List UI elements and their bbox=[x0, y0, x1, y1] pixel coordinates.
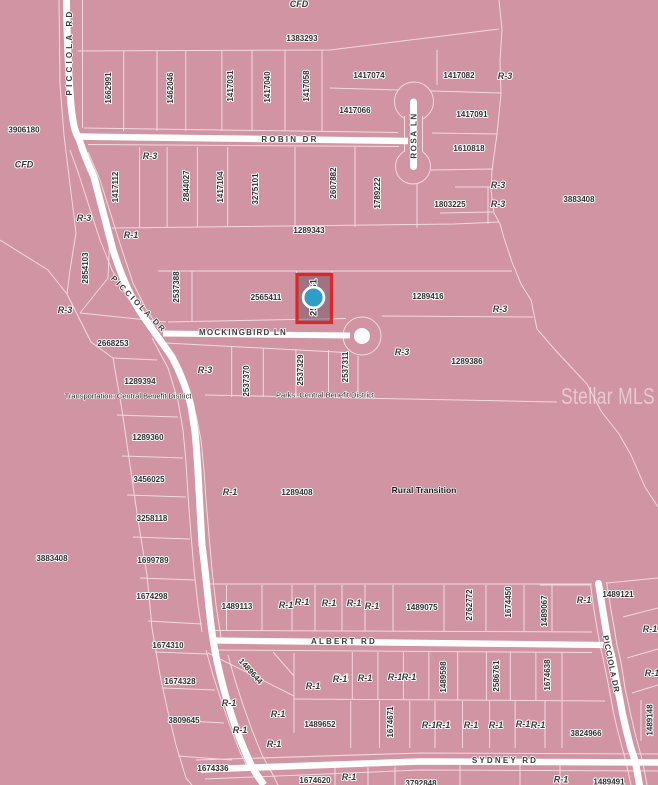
svg-text:3258118: 3258118 bbox=[137, 514, 168, 523]
svg-text:3809645: 3809645 bbox=[168, 716, 200, 725]
svg-text:R-1: R-1 bbox=[554, 775, 569, 785]
svg-text:1489067: 1489067 bbox=[540, 595, 549, 627]
svg-text:1417040: 1417040 bbox=[263, 71, 272, 103]
svg-text:ROBIN DR: ROBIN DR bbox=[261, 135, 318, 144]
svg-text:R-3: R-3 bbox=[493, 304, 508, 314]
svg-text:3456025: 3456025 bbox=[133, 475, 165, 484]
svg-text:1417058: 1417058 bbox=[302, 70, 311, 102]
svg-text:Parks: Central Benefit Distric: Parks: Central Benefit District bbox=[276, 391, 375, 400]
svg-text:1674671: 1674671 bbox=[386, 706, 395, 738]
svg-text:R-1: R-1 bbox=[306, 681, 321, 691]
svg-text:2537370: 2537370 bbox=[242, 365, 251, 397]
svg-text:CFD: CFD bbox=[290, 0, 309, 9]
svg-text:1489652: 1489652 bbox=[304, 720, 336, 729]
svg-text:1489491: 1489491 bbox=[593, 778, 625, 785]
svg-text:2668253: 2668253 bbox=[97, 339, 129, 348]
svg-text:ALBERT RD: ALBERT RD bbox=[311, 637, 377, 646]
svg-text:2607882: 2607882 bbox=[329, 167, 338, 199]
svg-text:1417074: 1417074 bbox=[353, 71, 385, 80]
svg-text:1417091: 1417091 bbox=[456, 110, 488, 119]
svg-text:1674298: 1674298 bbox=[136, 592, 168, 601]
svg-text:1417112: 1417112 bbox=[111, 171, 120, 202]
svg-text:R-3: R-3 bbox=[395, 347, 410, 357]
svg-text:R-1: R-1 bbox=[279, 600, 294, 610]
svg-text:1489075: 1489075 bbox=[406, 603, 438, 612]
svg-text:2565411: 2565411 bbox=[251, 293, 282, 302]
svg-text:1489598: 1489598 bbox=[439, 661, 448, 693]
svg-text:R-3: R-3 bbox=[491, 199, 506, 209]
svg-text:2586761: 2586761 bbox=[492, 660, 501, 692]
svg-text:R-1: R-1 bbox=[233, 725, 248, 735]
svg-text:Transportation: Central Benefi: Transportation: Central Benefit District bbox=[65, 392, 193, 401]
svg-text:R-1: R-1 bbox=[124, 230, 139, 240]
svg-text:R-1: R-1 bbox=[358, 673, 373, 683]
svg-text:1699789: 1699789 bbox=[137, 556, 169, 565]
svg-text:R-1: R-1 bbox=[489, 720, 504, 730]
svg-text:R-3: R-3 bbox=[77, 213, 92, 223]
svg-text:R-1: R-1 bbox=[531, 720, 546, 730]
svg-text:MOCKINGBIRD LN: MOCKINGBIRD LN bbox=[199, 328, 287, 337]
svg-text:3792848: 3792848 bbox=[405, 779, 437, 785]
svg-text:1383293: 1383293 bbox=[286, 34, 318, 43]
svg-text:1662991: 1662991 bbox=[104, 72, 113, 104]
svg-text:R-1: R-1 bbox=[322, 598, 337, 608]
svg-text:R-3: R-3 bbox=[143, 151, 158, 161]
svg-text:1674336: 1674336 bbox=[197, 764, 229, 773]
svg-text:R-3: R-3 bbox=[198, 365, 213, 375]
svg-text:R-3: R-3 bbox=[491, 180, 506, 190]
svg-text:2762772: 2762772 bbox=[465, 589, 474, 621]
svg-text:1289408: 1289408 bbox=[281, 488, 313, 497]
svg-text:Stellar MLS: Stellar MLS bbox=[561, 383, 655, 409]
svg-text:R-1: R-1 bbox=[333, 674, 348, 684]
svg-text:3883408: 3883408 bbox=[36, 554, 68, 563]
svg-text:3883408: 3883408 bbox=[563, 195, 595, 204]
svg-text:3824966: 3824966 bbox=[570, 729, 602, 738]
svg-text:1289343: 1289343 bbox=[293, 226, 325, 235]
svg-text:1289386: 1289386 bbox=[451, 357, 483, 366]
svg-text:CFD: CFD bbox=[15, 160, 34, 170]
svg-text:1462046: 1462046 bbox=[166, 72, 175, 104]
svg-text:R-1: R-1 bbox=[422, 720, 437, 730]
svg-text:R-1: R-1 bbox=[436, 720, 451, 730]
svg-text:ROSA LN: ROSA LN bbox=[410, 112, 419, 158]
svg-text:1674328: 1674328 bbox=[164, 677, 196, 686]
svg-text:1417104: 1417104 bbox=[216, 171, 225, 203]
svg-text:1417082: 1417082 bbox=[443, 71, 475, 80]
svg-text:PICCIOLA RD: PICCIOLA RD bbox=[65, 9, 74, 96]
svg-text:R-1: R-1 bbox=[464, 720, 479, 730]
svg-text:R-1: R-1 bbox=[271, 709, 286, 719]
svg-text:R-1: R-1 bbox=[223, 487, 238, 497]
svg-text:3906180: 3906180 bbox=[8, 126, 40, 135]
svg-text:R-1: R-1 bbox=[516, 719, 531, 729]
svg-text:R-1: R-1 bbox=[222, 698, 237, 708]
svg-text:R-1: R-1 bbox=[295, 597, 310, 607]
svg-text:R-1: R-1 bbox=[402, 672, 417, 682]
svg-text:R-1: R-1 bbox=[645, 668, 658, 678]
svg-text:1674620: 1674620 bbox=[299, 776, 331, 785]
svg-text:1674310: 1674310 bbox=[152, 641, 184, 650]
svg-text:3275101: 3275101 bbox=[251, 173, 260, 205]
svg-text:R-1: R-1 bbox=[643, 624, 658, 634]
svg-text:1417031: 1417031 bbox=[226, 70, 235, 102]
svg-text:Rural Transition: Rural Transition bbox=[392, 485, 457, 495]
svg-text:1489121: 1489121 bbox=[602, 590, 634, 599]
svg-text:1674638: 1674638 bbox=[543, 659, 552, 691]
svg-text:1674450: 1674450 bbox=[504, 586, 513, 618]
svg-text:2844027: 2844027 bbox=[182, 170, 191, 202]
svg-text:SYDNEY RD: SYDNEY RD bbox=[472, 756, 538, 765]
svg-text:R-1: R-1 bbox=[577, 595, 592, 605]
svg-text:1489113: 1489113 bbox=[222, 602, 253, 611]
svg-text:2537329: 2537329 bbox=[296, 354, 305, 386]
svg-text:R-1: R-1 bbox=[347, 598, 362, 608]
svg-text:R-1: R-1 bbox=[388, 672, 403, 682]
svg-text:R-1: R-1 bbox=[342, 772, 357, 782]
svg-text:1289360: 1289360 bbox=[132, 433, 164, 442]
svg-text:2854103: 2854103 bbox=[81, 252, 90, 284]
svg-text:1610818: 1610818 bbox=[453, 144, 485, 153]
svg-text:R-1: R-1 bbox=[267, 739, 282, 749]
svg-text:R-3: R-3 bbox=[498, 71, 513, 81]
svg-text:1289416: 1289416 bbox=[412, 292, 444, 301]
svg-text:1489148: 1489148 bbox=[646, 704, 655, 736]
svg-text:1803225: 1803225 bbox=[434, 200, 466, 209]
svg-text:R-3: R-3 bbox=[58, 305, 73, 315]
svg-text:1417066: 1417066 bbox=[339, 106, 371, 115]
svg-text:R-1: R-1 bbox=[365, 601, 380, 611]
svg-text:2537311: 2537311 bbox=[341, 351, 350, 382]
svg-text:1289394: 1289394 bbox=[124, 377, 156, 386]
svg-text:1789222: 1789222 bbox=[373, 177, 382, 209]
svg-text:2537388: 2537388 bbox=[172, 271, 181, 303]
